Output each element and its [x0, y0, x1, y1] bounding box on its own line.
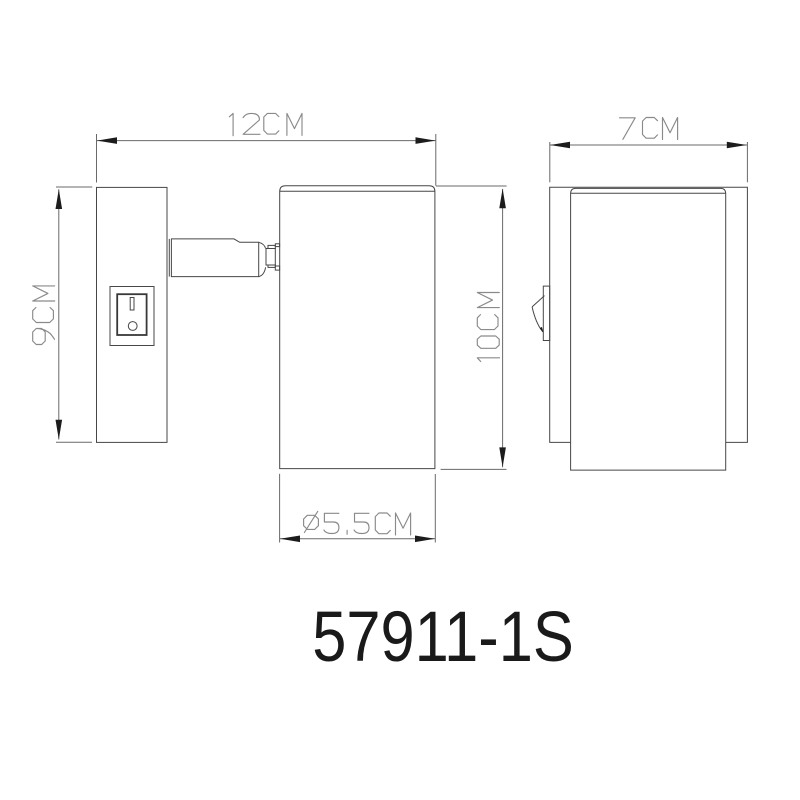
- svg-text:57911-1S: 57911-1S: [312, 598, 574, 677]
